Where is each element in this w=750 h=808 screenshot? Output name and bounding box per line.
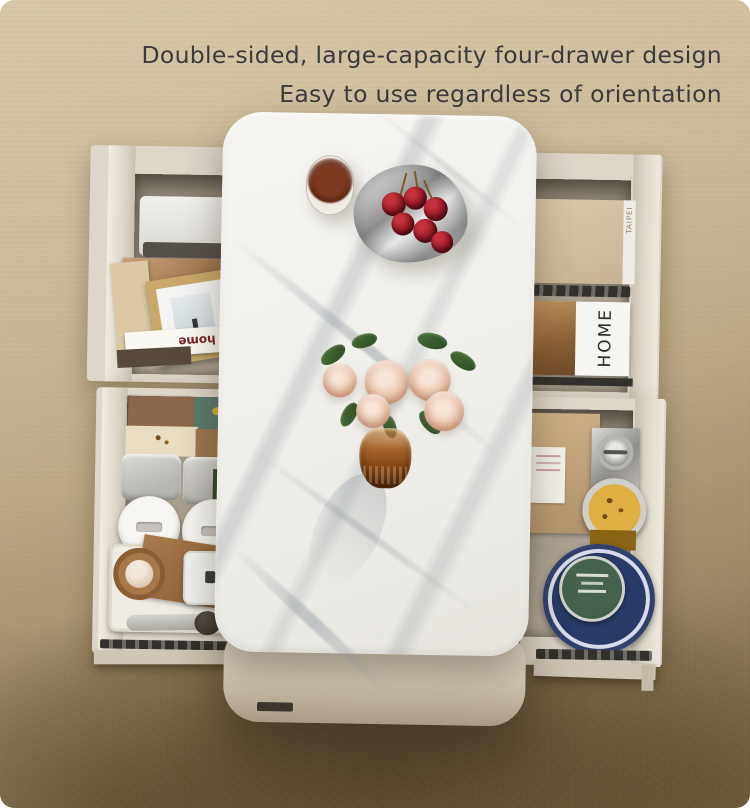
drawer-top-left: at home	[87, 145, 241, 384]
white-box-logo	[205, 571, 215, 583]
tea-glass	[306, 155, 355, 216]
brand-label	[257, 702, 293, 712]
drawer-underside	[94, 650, 228, 664]
drawer-underside	[533, 660, 655, 680]
radio-grille	[143, 242, 229, 258]
home-magazine-title: HOME	[595, 308, 616, 368]
book-taipei-spine: TAIPEI	[625, 206, 633, 233]
square-tin	[121, 454, 182, 501]
magazine-cover-photo	[529, 301, 576, 376]
product-image: Double-sided, large-capacity four-drawer…	[0, 0, 750, 808]
drawer-slide-rail	[536, 649, 652, 661]
drawer-slide-rail	[530, 285, 630, 298]
speckle	[165, 440, 169, 444]
drawer-bottom-right	[520, 397, 667, 667]
emblem-bar	[603, 450, 627, 454]
vase-ribs	[363, 466, 407, 485]
tea-box-cream	[125, 426, 198, 457]
drawer-support-post	[641, 665, 653, 691]
glass-bottle	[126, 614, 204, 631]
candy-pearls	[125, 560, 153, 588]
book-pages-edge: TAIPEI	[622, 200, 635, 284]
coffee-table-group: at home	[0, 0, 750, 808]
home-magazine: HOME	[529, 301, 630, 377]
kraft-box-label	[531, 447, 566, 504]
jar-speckle	[607, 498, 613, 503]
drawer-top-right: TAIPEI HOME	[524, 153, 662, 401]
book-taipei: TAIPEI	[530, 199, 625, 285]
jar-speckle	[618, 508, 623, 512]
tea-box-brown	[128, 396, 195, 427]
canister-handle	[136, 522, 162, 532]
canister-emblem	[597, 434, 634, 471]
speckle	[156, 435, 161, 440]
jar-speckle	[602, 514, 607, 519]
